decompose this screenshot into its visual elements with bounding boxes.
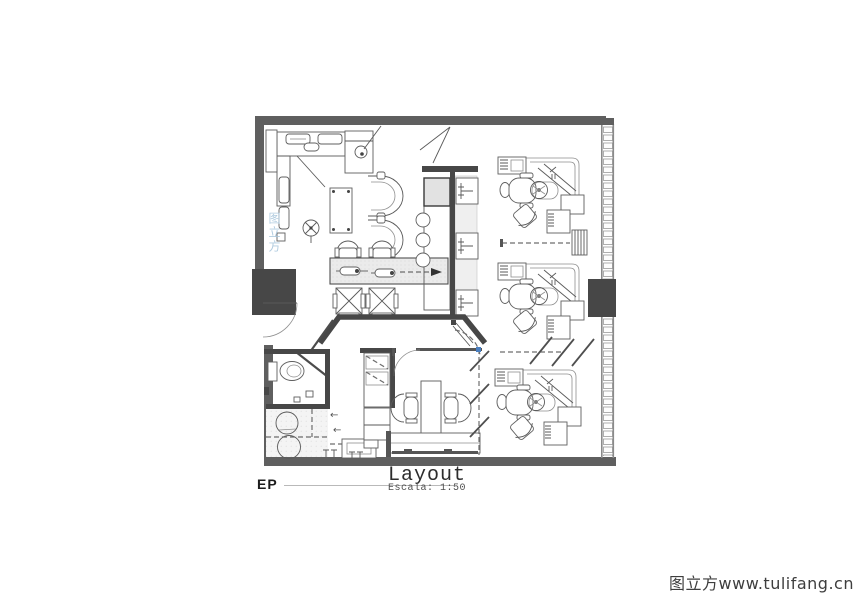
partition-marker xyxy=(476,347,481,352)
upper-cabinet xyxy=(424,178,450,206)
treatment-area xyxy=(495,157,594,445)
center-cabinet-wall xyxy=(416,166,478,316)
desk-return xyxy=(345,131,373,173)
wall-unit xyxy=(456,290,478,316)
appliance xyxy=(304,143,319,151)
desk-chair xyxy=(444,393,471,423)
site-watermark: 图立方www.tulifang.cn xyxy=(669,570,854,594)
stool xyxy=(416,213,430,227)
portal-wall xyxy=(320,317,485,343)
desk-chair xyxy=(391,393,418,423)
dental-station-3 xyxy=(495,369,581,445)
task-chair xyxy=(366,288,398,317)
floor-lamp xyxy=(303,220,319,243)
reception-chair xyxy=(335,241,361,259)
consultation-office xyxy=(386,347,489,457)
column-left xyxy=(252,269,296,315)
column-right xyxy=(588,279,616,317)
toilet-room xyxy=(264,349,330,409)
drawing-scale: Escala: 1:50 xyxy=(352,483,502,494)
page: ← ← xyxy=(0,0,860,608)
arrow-note: ← xyxy=(330,410,338,421)
reception-chair xyxy=(369,241,395,259)
door-swing xyxy=(394,350,420,376)
toilet-bowl xyxy=(280,362,304,381)
wall-unit xyxy=(456,233,478,259)
dental-station-1 xyxy=(498,157,584,233)
bay-divider-2 xyxy=(500,337,594,366)
dental-station-2 xyxy=(498,263,584,339)
window-wall xyxy=(588,118,616,458)
plan-watermark: 图立方 xyxy=(266,212,283,254)
door-leaf xyxy=(310,320,333,352)
utility-area: ← ← xyxy=(266,409,376,459)
lounge-chair xyxy=(368,172,403,220)
coffee-table xyxy=(330,188,352,233)
detail-tag: EP xyxy=(257,476,278,492)
stool xyxy=(416,253,430,267)
wall-unit xyxy=(456,178,478,204)
floor-plan-svg: ← ← xyxy=(0,0,860,608)
toilet-tank xyxy=(268,362,277,381)
task-chair xyxy=(333,288,365,317)
bay-divider-1 xyxy=(500,230,587,255)
appliance xyxy=(318,134,342,144)
stool xyxy=(416,233,430,247)
pantry-office xyxy=(266,126,381,241)
folding-door xyxy=(420,127,450,163)
arrow-note: ← xyxy=(333,425,341,436)
reception xyxy=(330,241,448,317)
